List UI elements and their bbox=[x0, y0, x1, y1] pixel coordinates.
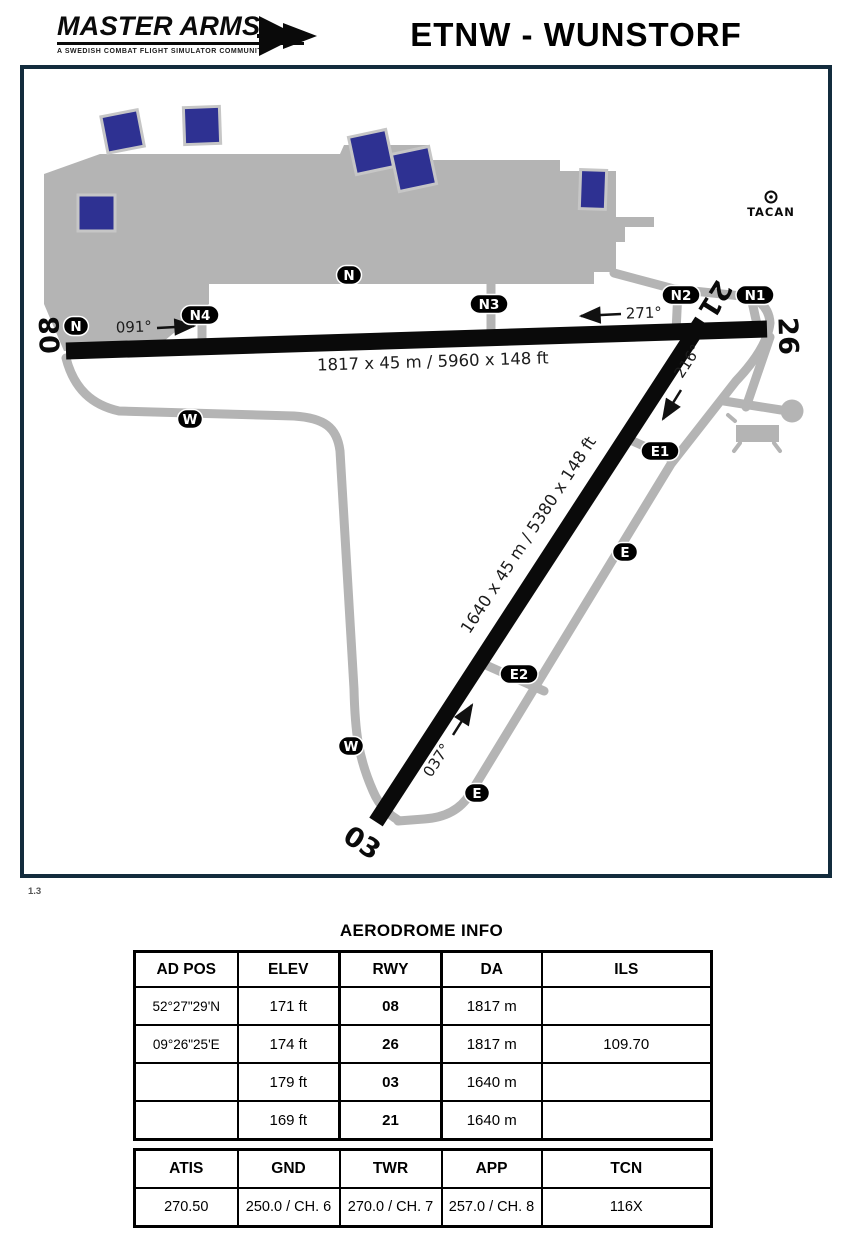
freq-cell: 257.0 / CH. 8 bbox=[442, 1188, 542, 1227]
header-cell: ILS bbox=[542, 952, 712, 988]
header-cell: GND bbox=[238, 1150, 340, 1189]
tacan-label: TACAN bbox=[747, 205, 795, 219]
svg-text:E1: E1 bbox=[651, 444, 670, 460]
taxiway-label-W: W bbox=[339, 737, 364, 756]
runway-end-26: 26 bbox=[771, 317, 803, 356]
svg-text:N1: N1 bbox=[745, 288, 766, 304]
tacan-beacon: TACAN bbox=[747, 192, 795, 220]
info-cell bbox=[135, 1101, 238, 1140]
chart-version: 1.3 bbox=[28, 886, 41, 897]
info-cell bbox=[542, 1101, 712, 1140]
info-cell bbox=[135, 1063, 238, 1101]
table-row: 179 ft 03 1640 m bbox=[135, 1063, 712, 1101]
info-cell: 03 bbox=[340, 1063, 442, 1101]
svg-text:N: N bbox=[343, 268, 354, 284]
hangar bbox=[348, 129, 393, 174]
taxiway-label-E: E bbox=[465, 784, 490, 803]
runway-cross-dimensions: 1640 x 45 m / 5380 x 148 ft bbox=[457, 433, 600, 637]
svg-text:E2: E2 bbox=[510, 667, 529, 683]
frequencies-table: ATIS GND TWR APP TCN 270.50 250.0 / CH. … bbox=[133, 1148, 713, 1228]
svg-text:N3: N3 bbox=[479, 297, 500, 313]
taxiway-label-N3: N3 bbox=[470, 295, 508, 314]
taxiway-label-N: N bbox=[337, 266, 362, 285]
taxiway-label-E1: E1 bbox=[641, 442, 679, 461]
taxiway-label-N2: N2 bbox=[662, 286, 700, 305]
runway-main-dimensions: 1817 x 45 m / 5960 x 148 ft bbox=[317, 348, 550, 374]
info-cell: 179 ft bbox=[238, 1063, 340, 1101]
table-row: 09°26"25'E 174 ft 26 1817 m 109.70 bbox=[135, 1025, 712, 1063]
hangar bbox=[579, 170, 606, 210]
header-cell: TWR bbox=[340, 1150, 442, 1189]
taxiway-label-N4: N4 bbox=[181, 306, 219, 325]
svg-text:N4: N4 bbox=[190, 308, 211, 324]
svg-text:E: E bbox=[620, 545, 629, 561]
freq-cell: 270.0 / CH. 7 bbox=[340, 1188, 442, 1227]
svg-text:W: W bbox=[183, 412, 198, 428]
taxiway-heli-stub bbox=[724, 401, 781, 410]
info-cell: 1640 m bbox=[442, 1063, 542, 1101]
svg-text:N: N bbox=[70, 319, 81, 335]
taxiway-label-N1: N1 bbox=[736, 286, 774, 305]
info-cell: 169 ft bbox=[238, 1101, 340, 1140]
aerodrome-info-title: AERODROME INFO bbox=[133, 921, 710, 941]
taxiway-label-E2: E2 bbox=[500, 665, 538, 684]
masterarms-jet-icon bbox=[257, 11, 323, 61]
runway-end-03: 03 bbox=[338, 820, 386, 866]
heading-271-arrow-icon bbox=[581, 314, 621, 316]
helipad-building bbox=[736, 425, 779, 442]
info-cell: 21 bbox=[340, 1101, 442, 1140]
page-title: ETNW - WUNSTORF bbox=[400, 16, 752, 54]
info-cell bbox=[542, 987, 712, 1025]
header-cell: APP bbox=[442, 1150, 542, 1189]
heading-091: 091° bbox=[115, 317, 152, 336]
info-cell: 1817 m bbox=[442, 987, 542, 1025]
freq-cell: 116X bbox=[542, 1188, 712, 1227]
header-cell: TCN bbox=[542, 1150, 712, 1189]
info-cell: 1640 m bbox=[442, 1101, 542, 1140]
hangar bbox=[78, 195, 115, 231]
header-cell: DA bbox=[442, 952, 542, 988]
svg-text:N2: N2 bbox=[671, 288, 692, 304]
masterarms-logo: MASTER ARMS A SWEDISH COMBAT FLIGHT SIMU… bbox=[57, 11, 317, 55]
info-cell: 174 ft bbox=[238, 1025, 340, 1063]
heading-271: 271° bbox=[625, 303, 662, 322]
heading-216-arrow-icon bbox=[663, 390, 681, 419]
table-row: 169 ft 21 1640 m bbox=[135, 1101, 712, 1140]
info-cell: 26 bbox=[340, 1025, 442, 1063]
header-cell: AD POS bbox=[135, 952, 238, 988]
runway-03-21 bbox=[376, 321, 702, 822]
hangar bbox=[183, 106, 220, 144]
table-row: 52°27"29'N 171 ft 08 1817 m bbox=[135, 987, 712, 1025]
diagram-frame: 1817 x 45 m / 5960 x 148 ft 1640 x 45 m … bbox=[20, 65, 832, 878]
header-cell: RWY bbox=[340, 952, 442, 988]
svg-text:E: E bbox=[472, 786, 481, 802]
tacan-icon-dot bbox=[769, 195, 773, 199]
helipad-circle bbox=[781, 400, 804, 423]
taxiway-label-N: N bbox=[64, 317, 89, 336]
freq-cell: 250.0 / CH. 6 bbox=[238, 1188, 340, 1227]
apron-structure bbox=[616, 217, 654, 242]
table-header-row: AD POS ELEV RWY DA ILS bbox=[135, 952, 712, 988]
taxiway-label-W: W bbox=[178, 410, 203, 429]
aerodrome-info-table: AD POS ELEV RWY DA ILS 52°27"29'N 171 ft… bbox=[133, 950, 713, 1141]
runway-end-08: 08 bbox=[34, 316, 66, 355]
freq-cell: 270.50 bbox=[135, 1188, 238, 1227]
info-cell: 109.70 bbox=[542, 1025, 712, 1063]
table-row: 270.50 250.0 / CH. 6 270.0 / CH. 7 257.0… bbox=[135, 1188, 712, 1227]
svg-text:W: W bbox=[344, 739, 359, 755]
table-header-row: ATIS GND TWR APP TCN bbox=[135, 1150, 712, 1189]
header-cell: ELEV bbox=[238, 952, 340, 988]
info-cell: 09°26"25'E bbox=[135, 1025, 238, 1063]
taxiway-label-E: E bbox=[613, 543, 638, 562]
kneeboard-page: { "header": { "logo_title": "MASTER ARMS… bbox=[0, 0, 849, 1246]
header-cell: ATIS bbox=[135, 1150, 238, 1189]
info-cell bbox=[542, 1063, 712, 1101]
info-cell: 52°27"29'N bbox=[135, 987, 238, 1025]
hangar bbox=[101, 110, 144, 153]
hangar bbox=[391, 146, 436, 191]
info-cell: 08 bbox=[340, 987, 442, 1025]
info-cell: 1817 m bbox=[442, 1025, 542, 1063]
airport-diagram: 1817 x 45 m / 5960 x 148 ft 1640 x 45 m … bbox=[24, 69, 828, 874]
info-cell: 171 ft bbox=[238, 987, 340, 1025]
